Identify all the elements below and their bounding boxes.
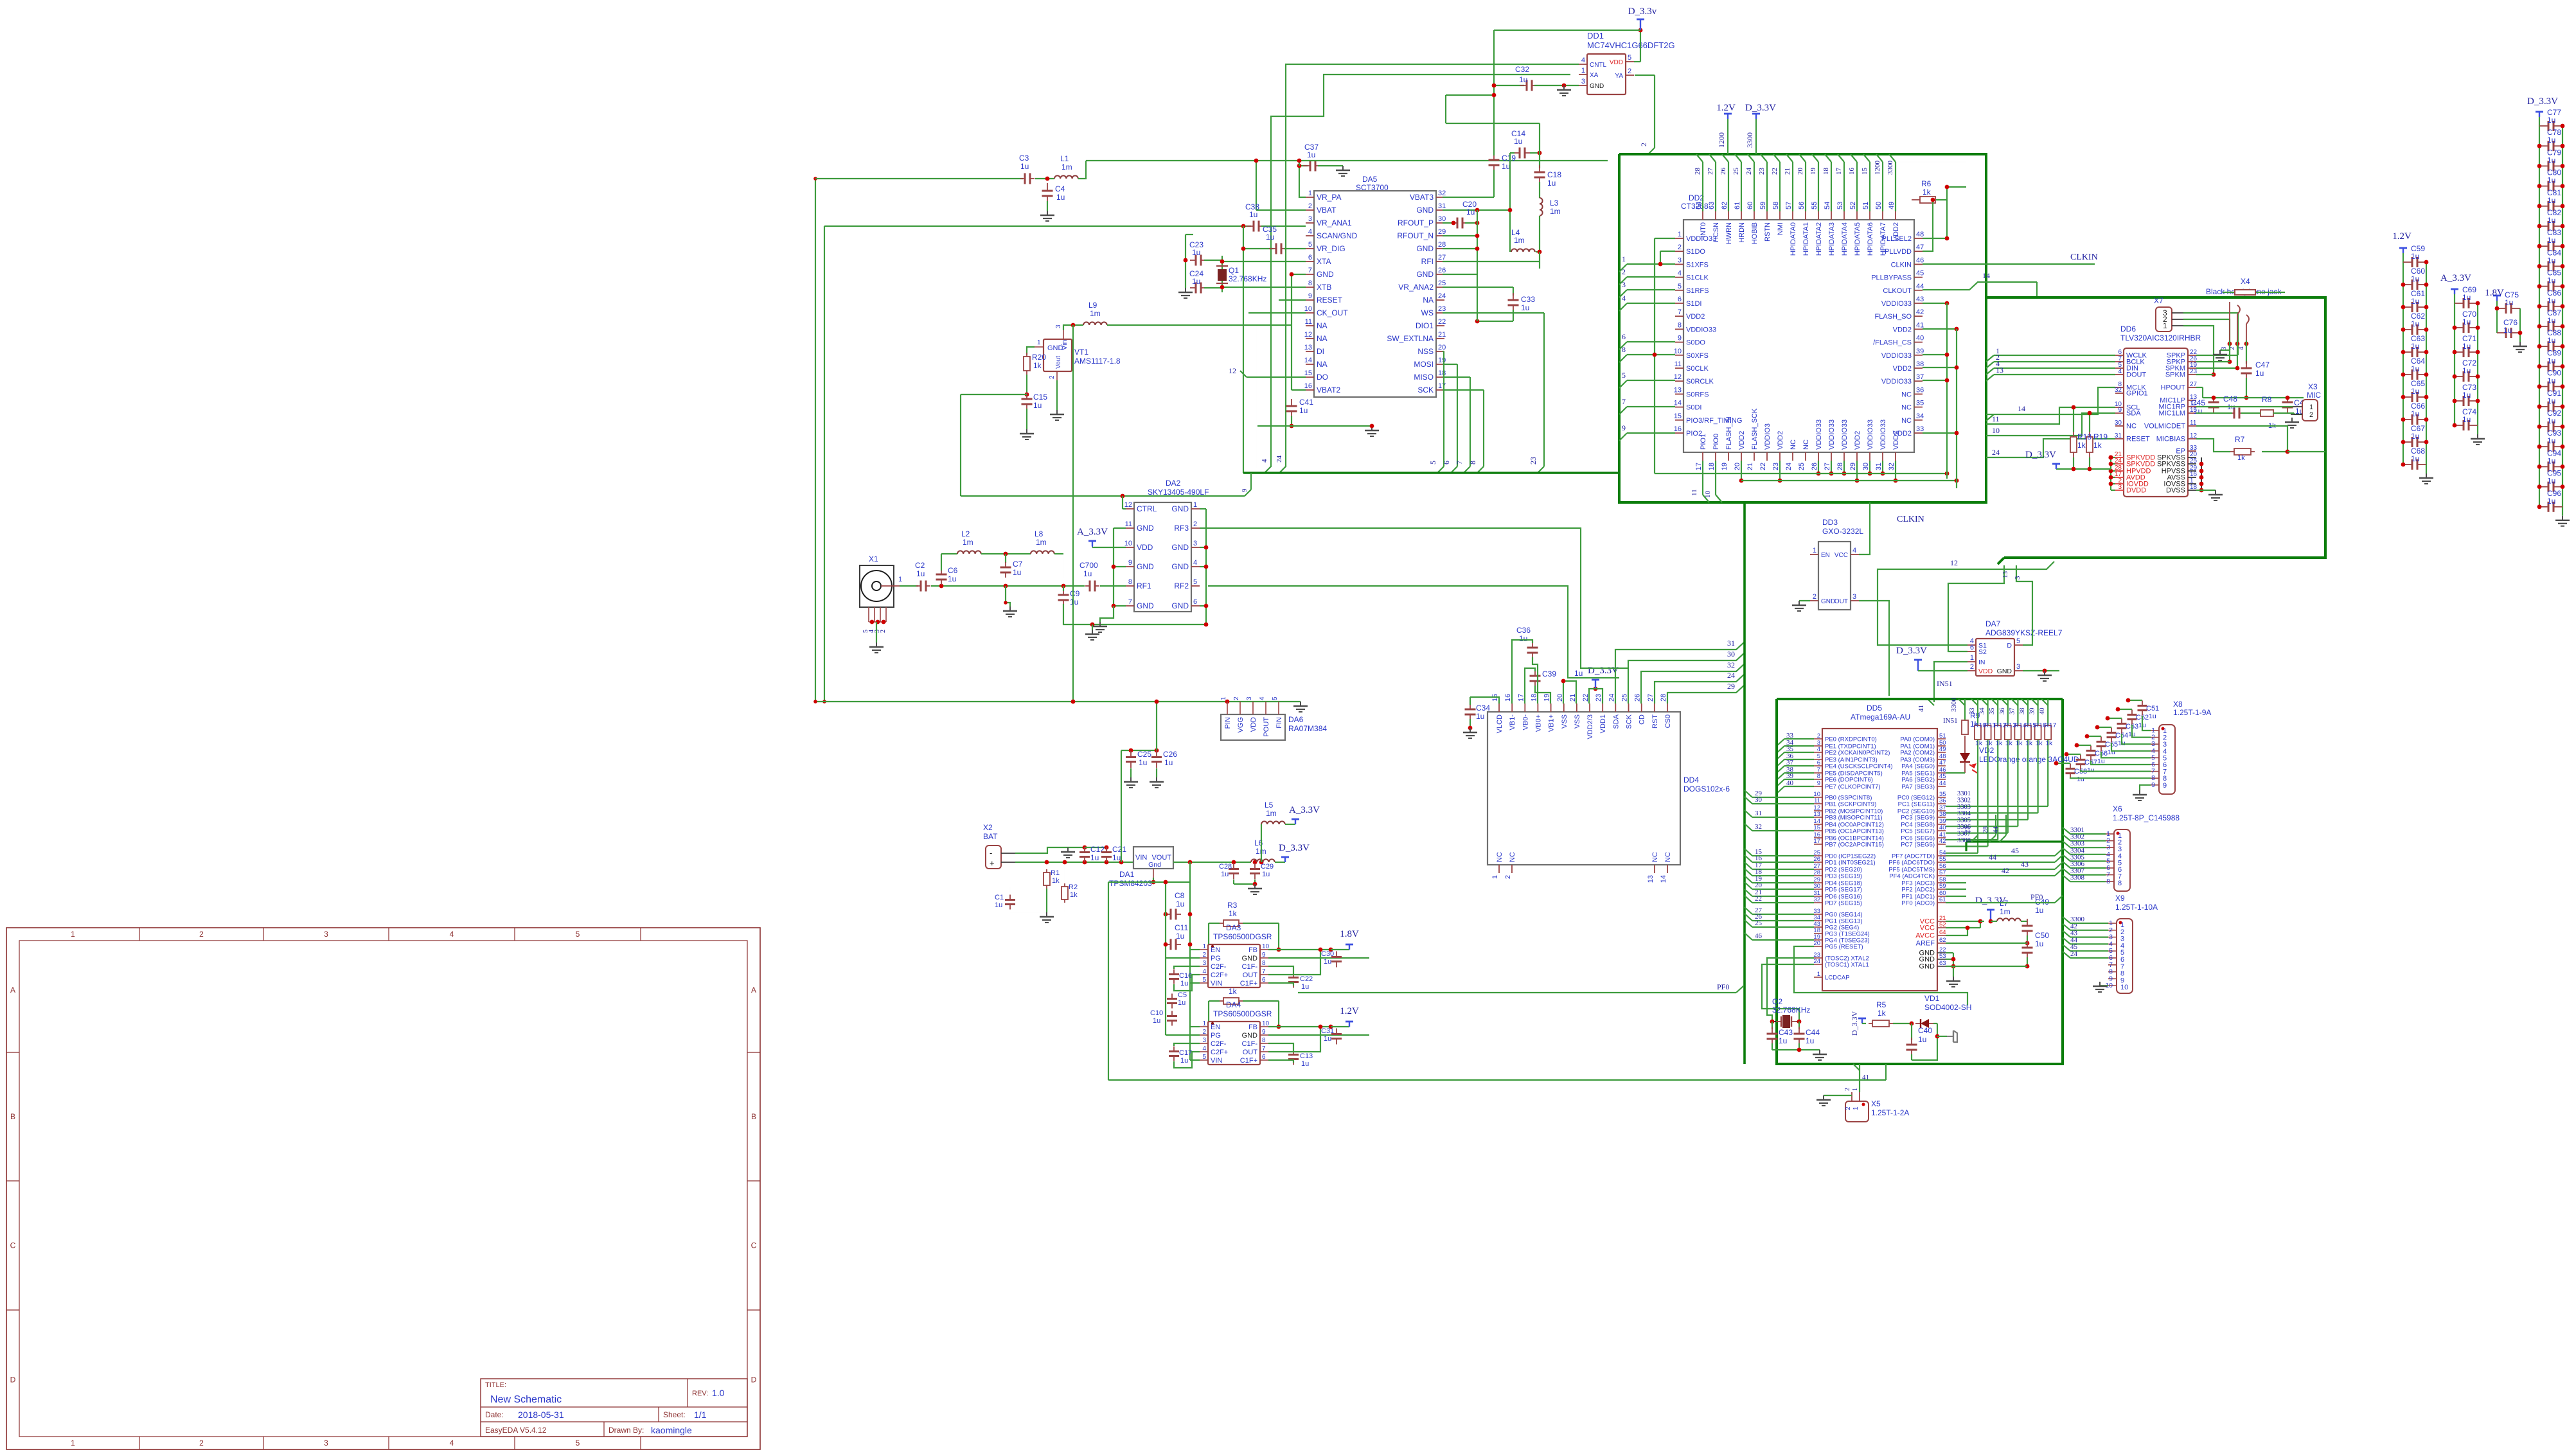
svg-text:C8: C8 bbox=[1175, 891, 1185, 900]
svg-text:42: 42 bbox=[2002, 866, 2009, 875]
svg-text:56: 56 bbox=[1798, 202, 1806, 209]
svg-text:1k: 1k bbox=[2015, 739, 2023, 747]
svg-text:3: 3 bbox=[1202, 960, 1206, 967]
svg-text:5: 5 bbox=[1272, 696, 1279, 700]
svg-text:CLKIN: CLKIN bbox=[1897, 515, 1924, 524]
svg-text:5: 5 bbox=[1308, 241, 1312, 249]
svg-text:CK_OUT: CK_OUT bbox=[1317, 308, 1348, 317]
svg-text:PB1 (SCKPCINT9): PB1 (SCKPCINT9) bbox=[1825, 801, 1876, 808]
svg-text:REV:: REV: bbox=[692, 1390, 708, 1397]
svg-text:1k: 1k bbox=[1878, 1009, 1887, 1018]
svg-text:53: 53 bbox=[1836, 202, 1844, 209]
svg-text:3: 3 bbox=[1581, 78, 1585, 85]
svg-text:1u: 1u bbox=[1301, 983, 1309, 991]
svg-text:1.2V: 1.2V bbox=[1340, 1006, 1359, 1016]
svg-text:1u: 1u bbox=[2547, 236, 2555, 245]
svg-text:FLASH_SCK: FLASH_SCK bbox=[1751, 408, 1759, 450]
svg-text:X4: X4 bbox=[2241, 277, 2250, 286]
svg-text:C36: C36 bbox=[1516, 626, 1531, 635]
svg-text:New Schematic: New Schematic bbox=[490, 1394, 562, 1405]
svg-text:5: 5 bbox=[1202, 1054, 1206, 1061]
svg-text:2: 2 bbox=[1844, 1088, 1851, 1091]
svg-text:VB1+: VB1+ bbox=[1548, 714, 1556, 732]
svg-text:DA1: DA1 bbox=[1119, 870, 1135, 879]
svg-text:1m: 1m bbox=[1266, 809, 1277, 818]
svg-text:RF2: RF2 bbox=[1174, 581, 1189, 590]
svg-text:14: 14 bbox=[2018, 404, 2025, 413]
svg-text:1200: 1200 bbox=[1717, 132, 1726, 148]
svg-text:35: 35 bbox=[1916, 400, 1924, 407]
svg-text:MOSI: MOSI bbox=[1414, 360, 1434, 369]
svg-text:C7: C7 bbox=[1013, 560, 1023, 569]
svg-text:PB3 (MISOPCINT11): PB3 (MISOPCINT11) bbox=[1825, 815, 1883, 822]
svg-text:3: 3 bbox=[2014, 576, 2021, 580]
svg-text:2: 2 bbox=[2309, 411, 2313, 419]
svg-text:13: 13 bbox=[2002, 571, 2009, 579]
svg-text:28: 28 bbox=[1438, 241, 1446, 249]
svg-text:11: 11 bbox=[1125, 520, 1132, 528]
svg-text:33: 33 bbox=[1969, 708, 1976, 715]
svg-text:30: 30 bbox=[1755, 796, 1763, 804]
svg-text:23: 23 bbox=[1595, 694, 1603, 702]
svg-text:BAT: BAT bbox=[983, 832, 998, 841]
svg-text:A: A bbox=[10, 986, 15, 995]
svg-text:40: 40 bbox=[2039, 708, 2046, 715]
svg-text:1.2V: 1.2V bbox=[1716, 103, 1736, 113]
svg-text:41: 41 bbox=[1916, 321, 1924, 329]
svg-text:PE4 (USCKSCLPCINT4): PE4 (USCKSCLPCINT4) bbox=[1825, 763, 1893, 770]
svg-text:18: 18 bbox=[2190, 484, 2198, 491]
svg-text:5: 5 bbox=[1628, 54, 1631, 62]
svg-text:VB0-: VB0- bbox=[1522, 714, 1529, 730]
svg-text:C47: C47 bbox=[2255, 360, 2270, 369]
svg-text:1u: 1u bbox=[2547, 436, 2555, 445]
svg-text:VD1: VD1 bbox=[1924, 994, 1940, 1003]
svg-text:PD1 (INT0SEG21): PD1 (INT0SEG21) bbox=[1825, 860, 1876, 867]
svg-text:9: 9 bbox=[1817, 780, 1820, 787]
svg-text:IN51: IN51 bbox=[1937, 679, 1953, 688]
svg-text:C48: C48 bbox=[2223, 394, 2237, 403]
svg-text:VBAT: VBAT bbox=[1317, 206, 1337, 215]
svg-text:17: 17 bbox=[1695, 463, 1703, 470]
svg-text:54: 54 bbox=[1824, 202, 1831, 209]
svg-text:C44: C44 bbox=[1806, 1028, 1820, 1037]
svg-text:24: 24 bbox=[1727, 671, 1735, 680]
svg-text:1u: 1u bbox=[2035, 906, 2043, 915]
svg-text:10: 10 bbox=[1704, 491, 1712, 499]
svg-text:FLASH_SO: FLASH_SO bbox=[1875, 313, 1912, 321]
svg-text:38: 38 bbox=[1939, 811, 1946, 818]
svg-text:1u: 1u bbox=[2505, 298, 2513, 307]
svg-text:1u: 1u bbox=[2462, 293, 2471, 302]
svg-text:1u: 1u bbox=[2547, 396, 2555, 405]
svg-text:C1F+: C1F+ bbox=[1240, 980, 1257, 987]
svg-text:1: 1 bbox=[1037, 339, 1041, 346]
svg-text:VDD2/3: VDD2/3 bbox=[1586, 714, 1594, 739]
svg-text:8: 8 bbox=[1622, 345, 1626, 354]
svg-text:DD6: DD6 bbox=[2120, 324, 2136, 333]
svg-text:1k: 1k bbox=[2005, 739, 2013, 747]
svg-text:26: 26 bbox=[1813, 856, 1820, 863]
svg-text:9: 9 bbox=[1241, 488, 1248, 492]
svg-text:1u: 1u bbox=[995, 901, 1002, 909]
svg-text:28: 28 bbox=[1694, 168, 1701, 175]
svg-text:8: 8 bbox=[2106, 878, 2110, 885]
svg-text:23: 23 bbox=[1529, 457, 1538, 465]
svg-text:S0RCLK: S0RCLK bbox=[1686, 378, 1714, 385]
svg-text:VDD: VDD bbox=[1978, 668, 1993, 675]
svg-text:6: 6 bbox=[1970, 644, 1974, 651]
svg-text:DA2: DA2 bbox=[1166, 479, 1181, 488]
svg-text:1u: 1u bbox=[1176, 932, 1184, 941]
svg-text:1u: 1u bbox=[2547, 116, 2555, 125]
svg-text:16: 16 bbox=[1304, 382, 1312, 390]
svg-text:1u: 1u bbox=[1502, 162, 1510, 171]
svg-text:1u: 1u bbox=[1324, 958, 1331, 966]
svg-text:NA: NA bbox=[1423, 296, 1434, 305]
svg-text:4: 4 bbox=[1581, 57, 1585, 64]
svg-text:C4: C4 bbox=[1055, 184, 1065, 193]
svg-text:S0DI: S0DI bbox=[1686, 404, 1701, 412]
svg-text:C9: C9 bbox=[1070, 589, 1080, 598]
svg-text:40: 40 bbox=[1916, 335, 1924, 342]
svg-text:NC: NC bbox=[1901, 417, 1912, 425]
svg-text:5: 5 bbox=[1202, 977, 1206, 984]
svg-text:GND: GND bbox=[1171, 543, 1189, 552]
svg-text:1.25T-8P_C145988: 1.25T-8P_C145988 bbox=[2113, 813, 2180, 822]
svg-text:OUT: OUT bbox=[1243, 971, 1258, 979]
svg-text:SCK: SCK bbox=[1417, 385, 1434, 394]
svg-text:17: 17 bbox=[1813, 838, 1820, 845]
svg-text:C33: C33 bbox=[1521, 295, 1535, 304]
svg-text:VDDIO33: VDDIO33 bbox=[1879, 420, 1887, 450]
svg-text:15: 15 bbox=[1813, 824, 1820, 831]
svg-text:22: 22 bbox=[1755, 895, 1762, 903]
svg-text:C31: C31 bbox=[1321, 1027, 1334, 1035]
svg-text:4: 4 bbox=[1259, 696, 1266, 700]
svg-text:RFI: RFI bbox=[1421, 257, 1434, 266]
svg-text:22: 22 bbox=[1759, 463, 1767, 470]
svg-text:1u: 1u bbox=[2255, 369, 2264, 378]
svg-text:32.768KHz: 32.768KHz bbox=[1229, 274, 1266, 283]
svg-text:CS0: CS0 bbox=[1664, 714, 1672, 728]
svg-text:1u: 1u bbox=[1090, 853, 1099, 862]
svg-text:4: 4 bbox=[1202, 1045, 1206, 1052]
svg-text:34: 34 bbox=[1916, 412, 1924, 420]
svg-text:3304: 3304 bbox=[1957, 810, 1971, 817]
svg-text:PF2 (ADC2): PF2 (ADC2) bbox=[1901, 887, 1935, 894]
svg-text:R1: R1 bbox=[1051, 869, 1060, 877]
svg-text:9: 9 bbox=[1678, 335, 1682, 342]
svg-text:1u: 1u bbox=[1519, 75, 1527, 84]
svg-text:9: 9 bbox=[1262, 952, 1266, 959]
svg-text:26: 26 bbox=[1811, 463, 1818, 470]
svg-text:58: 58 bbox=[1772, 202, 1780, 209]
svg-text:SDA: SDA bbox=[2126, 410, 2141, 418]
svg-text:R17: R17 bbox=[2044, 722, 2056, 729]
svg-text:19: 19 bbox=[1543, 694, 1551, 702]
svg-text:/FLASH_CS: /FLASH_CS bbox=[1873, 339, 1912, 347]
svg-text:3: 3 bbox=[1308, 215, 1312, 223]
svg-text:31: 31 bbox=[2115, 432, 2122, 439]
svg-text:HPIDATA5: HPIDATA5 bbox=[1854, 222, 1861, 256]
svg-text:X7: X7 bbox=[2154, 296, 2163, 305]
svg-text:1u: 1u bbox=[1112, 853, 1121, 862]
svg-text:1u: 1u bbox=[2411, 364, 2419, 373]
svg-text:9: 9 bbox=[1308, 292, 1312, 300]
svg-text:PF6 (ADC6TDO): PF6 (ADC6TDO) bbox=[1888, 860, 1935, 867]
svg-text:16: 16 bbox=[1848, 168, 1856, 175]
svg-text:1u: 1u bbox=[1574, 669, 1583, 678]
svg-text:VR_DIG: VR_DIG bbox=[1317, 244, 1346, 253]
svg-text:L3: L3 bbox=[1550, 199, 1559, 208]
svg-text:1u: 1u bbox=[2462, 415, 2471, 424]
svg-text:1200: 1200 bbox=[1874, 161, 1881, 175]
svg-text:1u: 1u bbox=[2462, 342, 2471, 351]
svg-text:TPS60500DGSR: TPS60500DGSR bbox=[1213, 932, 1272, 941]
svg-text:1u: 1u bbox=[1324, 1035, 1331, 1043]
svg-text:9: 9 bbox=[2151, 781, 2155, 789]
svg-text:R3: R3 bbox=[1227, 901, 1238, 910]
svg-text:14: 14 bbox=[1304, 357, 1312, 364]
svg-text:TITLE:: TITLE: bbox=[485, 1381, 506, 1389]
svg-text:C11: C11 bbox=[1175, 923, 1188, 932]
svg-text:12: 12 bbox=[1229, 366, 1236, 375]
svg-text:15: 15 bbox=[1861, 168, 1869, 175]
svg-text:36: 36 bbox=[1999, 708, 2006, 715]
svg-text:17: 17 bbox=[1517, 694, 1525, 702]
svg-text:MIC1LM: MIC1LM bbox=[2158, 410, 2185, 418]
svg-text:PF0 (ADC0): PF0 (ADC0) bbox=[1901, 900, 1935, 907]
svg-text:9: 9 bbox=[1128, 559, 1132, 567]
svg-text:VBAT3: VBAT3 bbox=[1410, 193, 1434, 202]
svg-text:X9: X9 bbox=[2115, 894, 2125, 903]
svg-text:25: 25 bbox=[1755, 919, 1763, 927]
svg-text:PC3 (SEG9): PC3 (SEG9) bbox=[1901, 815, 1935, 822]
svg-text:1u: 1u bbox=[1083, 569, 1092, 578]
svg-text:DA6: DA6 bbox=[1288, 715, 1304, 724]
svg-text:1u: 1u bbox=[1070, 598, 1078, 606]
svg-text:18: 18 bbox=[1822, 168, 1830, 175]
svg-text:VR_PA: VR_PA bbox=[1317, 193, 1341, 202]
svg-text:S1CLK: S1CLK bbox=[1686, 274, 1709, 282]
svg-text:64: 64 bbox=[1695, 202, 1703, 209]
svg-text:4: 4 bbox=[1817, 746, 1820, 753]
svg-text:1m: 1m bbox=[1036, 538, 1047, 547]
svg-text:OUT: OUT bbox=[1243, 1049, 1258, 1056]
svg-text:C6: C6 bbox=[948, 566, 958, 575]
svg-text:PC7 (SEG5): PC7 (SEG5) bbox=[1901, 842, 1935, 849]
svg-text:1u: 1u bbox=[2547, 136, 2555, 145]
svg-text:1: 1 bbox=[71, 1439, 75, 1448]
svg-text:VB0+: VB0+ bbox=[1534, 714, 1542, 732]
svg-text:32: 32 bbox=[1727, 660, 1735, 669]
svg-text:PA2 (COM2): PA2 (COM2) bbox=[1900, 750, 1935, 757]
svg-text:PF0: PF0 bbox=[1717, 982, 1729, 991]
svg-text:C41: C41 bbox=[1299, 398, 1313, 407]
svg-text:C16: C16 bbox=[1179, 972, 1192, 980]
svg-text:1u: 1u bbox=[2411, 274, 2419, 283]
svg-text:55: 55 bbox=[1939, 856, 1946, 863]
svg-text:46: 46 bbox=[1916, 256, 1924, 264]
svg-text:1u: 1u bbox=[2547, 456, 2555, 465]
svg-text:1k: 1k bbox=[2025, 739, 2033, 747]
svg-text:VB1-: VB1- bbox=[1509, 714, 1516, 730]
svg-text:D_3.3V: D_3.3V bbox=[1588, 666, 1619, 676]
svg-text:23: 23 bbox=[1758, 168, 1766, 175]
svg-text:3300: 3300 bbox=[1950, 698, 1958, 713]
svg-text:1: 1 bbox=[1581, 67, 1585, 75]
svg-text:VCC: VCC bbox=[1920, 925, 1935, 932]
svg-text:20: 20 bbox=[1734, 463, 1741, 470]
svg-text:1.25T-1-10A: 1.25T-1-10A bbox=[2115, 903, 2158, 912]
svg-text:AREF: AREF bbox=[1916, 940, 1935, 948]
svg-text:DD4: DD4 bbox=[1683, 775, 1699, 784]
svg-text:C21: C21 bbox=[1112, 845, 1126, 854]
svg-text:1k: 1k bbox=[2077, 441, 2086, 450]
svg-text:HPIDATA6: HPIDATA6 bbox=[1867, 222, 1874, 256]
svg-text:2: 2 bbox=[880, 630, 887, 633]
svg-text:2: 2 bbox=[1202, 1029, 1206, 1036]
svg-text:57: 57 bbox=[1785, 202, 1793, 209]
svg-text:40: 40 bbox=[1939, 824, 1946, 831]
svg-text:1m: 1m bbox=[963, 538, 973, 547]
svg-text:INT0: INT0 bbox=[1700, 222, 1707, 238]
svg-text:R19: R19 bbox=[2093, 432, 2108, 441]
svg-text:3300: 3300 bbox=[1887, 161, 1894, 175]
svg-text:3: 3 bbox=[1193, 540, 1197, 547]
svg-text:VR_ANA2: VR_ANA2 bbox=[1398, 283, 1434, 292]
svg-text:C39: C39 bbox=[1542, 669, 1556, 678]
svg-text:1u: 1u bbox=[1262, 871, 1270, 878]
svg-text:VIN: VIN bbox=[1211, 1057, 1222, 1065]
svg-text:PE0 (RXDPCINT0): PE0 (RXDPCINT0) bbox=[1825, 736, 1877, 743]
svg-text:1u: 1u bbox=[2087, 766, 2095, 774]
svg-text:28: 28 bbox=[1660, 694, 1667, 702]
svg-text:13: 13 bbox=[1304, 344, 1312, 351]
svg-text:1k: 1k bbox=[1033, 361, 1042, 370]
svg-text:PC5 (SEG7): PC5 (SEG7) bbox=[1901, 828, 1935, 835]
svg-text:1k: 1k bbox=[1923, 188, 1932, 197]
svg-text:27: 27 bbox=[1438, 254, 1446, 261]
svg-text:PD7 (SEG15): PD7 (SEG15) bbox=[1825, 900, 1862, 907]
svg-text:24: 24 bbox=[1275, 456, 1283, 463]
svg-text:62: 62 bbox=[1939, 937, 1946, 944]
svg-text:9: 9 bbox=[2163, 782, 2167, 790]
svg-text:2: 2 bbox=[1233, 696, 1240, 700]
svg-text:PE2 (XCKAIN0PCINT2): PE2 (XCKAIN0PCINT2) bbox=[1825, 750, 1890, 757]
svg-text:1u: 1u bbox=[1521, 303, 1529, 312]
svg-text:59: 59 bbox=[1759, 202, 1767, 209]
svg-text:VDD2: VDD2 bbox=[1854, 431, 1861, 450]
svg-text:IN51: IN51 bbox=[1943, 717, 1958, 725]
svg-text:VDD2: VDD2 bbox=[1892, 222, 1900, 241]
svg-text:DI: DI bbox=[1317, 347, 1324, 356]
svg-text:1k: 1k bbox=[1985, 739, 1993, 747]
svg-text:1u: 1u bbox=[1806, 1036, 1814, 1045]
svg-text:GXO-3232L: GXO-3232L bbox=[1822, 527, 1863, 536]
svg-text:1: 1 bbox=[1622, 254, 1626, 263]
svg-text:27: 27 bbox=[1824, 463, 1831, 470]
svg-text:D_3.3V: D_3.3V bbox=[1745, 103, 1776, 113]
svg-text:41: 41 bbox=[1917, 705, 1925, 712]
svg-text:X2: X2 bbox=[983, 823, 993, 832]
svg-text:VDDIO3: VDDIO3 bbox=[1764, 423, 1772, 450]
svg-text:S1DI: S1DI bbox=[1686, 300, 1701, 308]
svg-text:1u: 1u bbox=[1779, 1036, 1787, 1045]
svg-text:PG: PG bbox=[1211, 1032, 1221, 1040]
svg-text:37: 37 bbox=[2009, 708, 2016, 715]
svg-text:1u: 1u bbox=[1020, 162, 1029, 171]
svg-text:GND: GND bbox=[1137, 524, 1154, 533]
svg-text:1u: 1u bbox=[1519, 634, 1527, 643]
svg-text:2: 2 bbox=[1308, 202, 1312, 210]
svg-text:10: 10 bbox=[1124, 540, 1132, 547]
svg-text:1k: 1k bbox=[1052, 877, 1060, 885]
svg-text:DD5: DD5 bbox=[1867, 704, 1882, 713]
svg-text:1k: 1k bbox=[2045, 739, 2053, 747]
svg-text:Vin: Vin bbox=[1061, 340, 1069, 350]
svg-text:2: 2 bbox=[1678, 243, 1682, 251]
svg-text:52: 52 bbox=[1849, 202, 1857, 209]
svg-text:PIO3/RF_TIMING: PIO3/RF_TIMING bbox=[1686, 417, 1742, 425]
svg-text:3: 3 bbox=[2016, 663, 2020, 671]
svg-text:NC: NC bbox=[1901, 404, 1912, 412]
svg-text:13: 13 bbox=[1996, 366, 2003, 375]
svg-text:12: 12 bbox=[1304, 331, 1312, 339]
svg-text:TPS60500DGSR: TPS60500DGSR bbox=[1213, 1009, 1272, 1018]
svg-text:PA6 (SEG2): PA6 (SEG2) bbox=[1901, 777, 1935, 784]
svg-text:12: 12 bbox=[1124, 501, 1132, 509]
svg-text:35: 35 bbox=[1989, 708, 1996, 715]
svg-text:NSS: NSS bbox=[1417, 347, 1434, 356]
svg-text:1u: 1u bbox=[2547, 276, 2555, 285]
svg-text:HPOUT: HPOUT bbox=[2161, 384, 2186, 392]
svg-text:D_3.3V: D_3.3V bbox=[1279, 843, 1310, 853]
svg-text:3: 3 bbox=[324, 1439, 328, 1448]
svg-text:C40: C40 bbox=[1918, 1026, 1932, 1035]
svg-text:1u: 1u bbox=[2411, 319, 2419, 328]
svg-text:RF1: RF1 bbox=[1137, 581, 1151, 590]
svg-text:5: 5 bbox=[1622, 371, 1626, 380]
svg-text:12: 12 bbox=[1950, 558, 1958, 567]
svg-text:64: 64 bbox=[1939, 929, 1946, 936]
svg-text:YA: YA bbox=[1615, 73, 1623, 80]
svg-text:1: 1 bbox=[2163, 321, 2167, 330]
svg-text:D_3.3V: D_3.3V bbox=[2527, 96, 2558, 107]
svg-text:23: 23 bbox=[1438, 305, 1446, 313]
svg-text:S2: S2 bbox=[1978, 648, 1987, 656]
svg-text:X5: X5 bbox=[1871, 1099, 1881, 1108]
svg-text:2: 2 bbox=[1970, 663, 1974, 671]
svg-text:3: 3 bbox=[1202, 1037, 1206, 1044]
svg-text:11: 11 bbox=[1305, 318, 1312, 326]
svg-text:1.8V: 1.8V bbox=[2485, 288, 2504, 298]
svg-text:9: 9 bbox=[2118, 407, 2122, 414]
svg-text:C30: C30 bbox=[1321, 950, 1334, 958]
svg-text:23: 23 bbox=[2190, 368, 2198, 375]
svg-text:8: 8 bbox=[1308, 279, 1312, 287]
svg-text:4: 4 bbox=[450, 1439, 454, 1448]
svg-text:HPIDATA3: HPIDATA3 bbox=[1828, 222, 1836, 256]
svg-text:MC74VHC1G66DFT2G: MC74VHC1G66DFT2G bbox=[1587, 40, 1675, 50]
svg-text:49: 49 bbox=[1939, 746, 1946, 753]
svg-text:PIO0: PIO0 bbox=[1712, 434, 1720, 450]
svg-text:VDDIO33: VDDIO33 bbox=[1867, 420, 1874, 450]
svg-text:R5: R5 bbox=[1876, 1000, 1887, 1009]
svg-text:3: 3 bbox=[1678, 256, 1682, 264]
svg-text:8: 8 bbox=[1678, 321, 1682, 329]
